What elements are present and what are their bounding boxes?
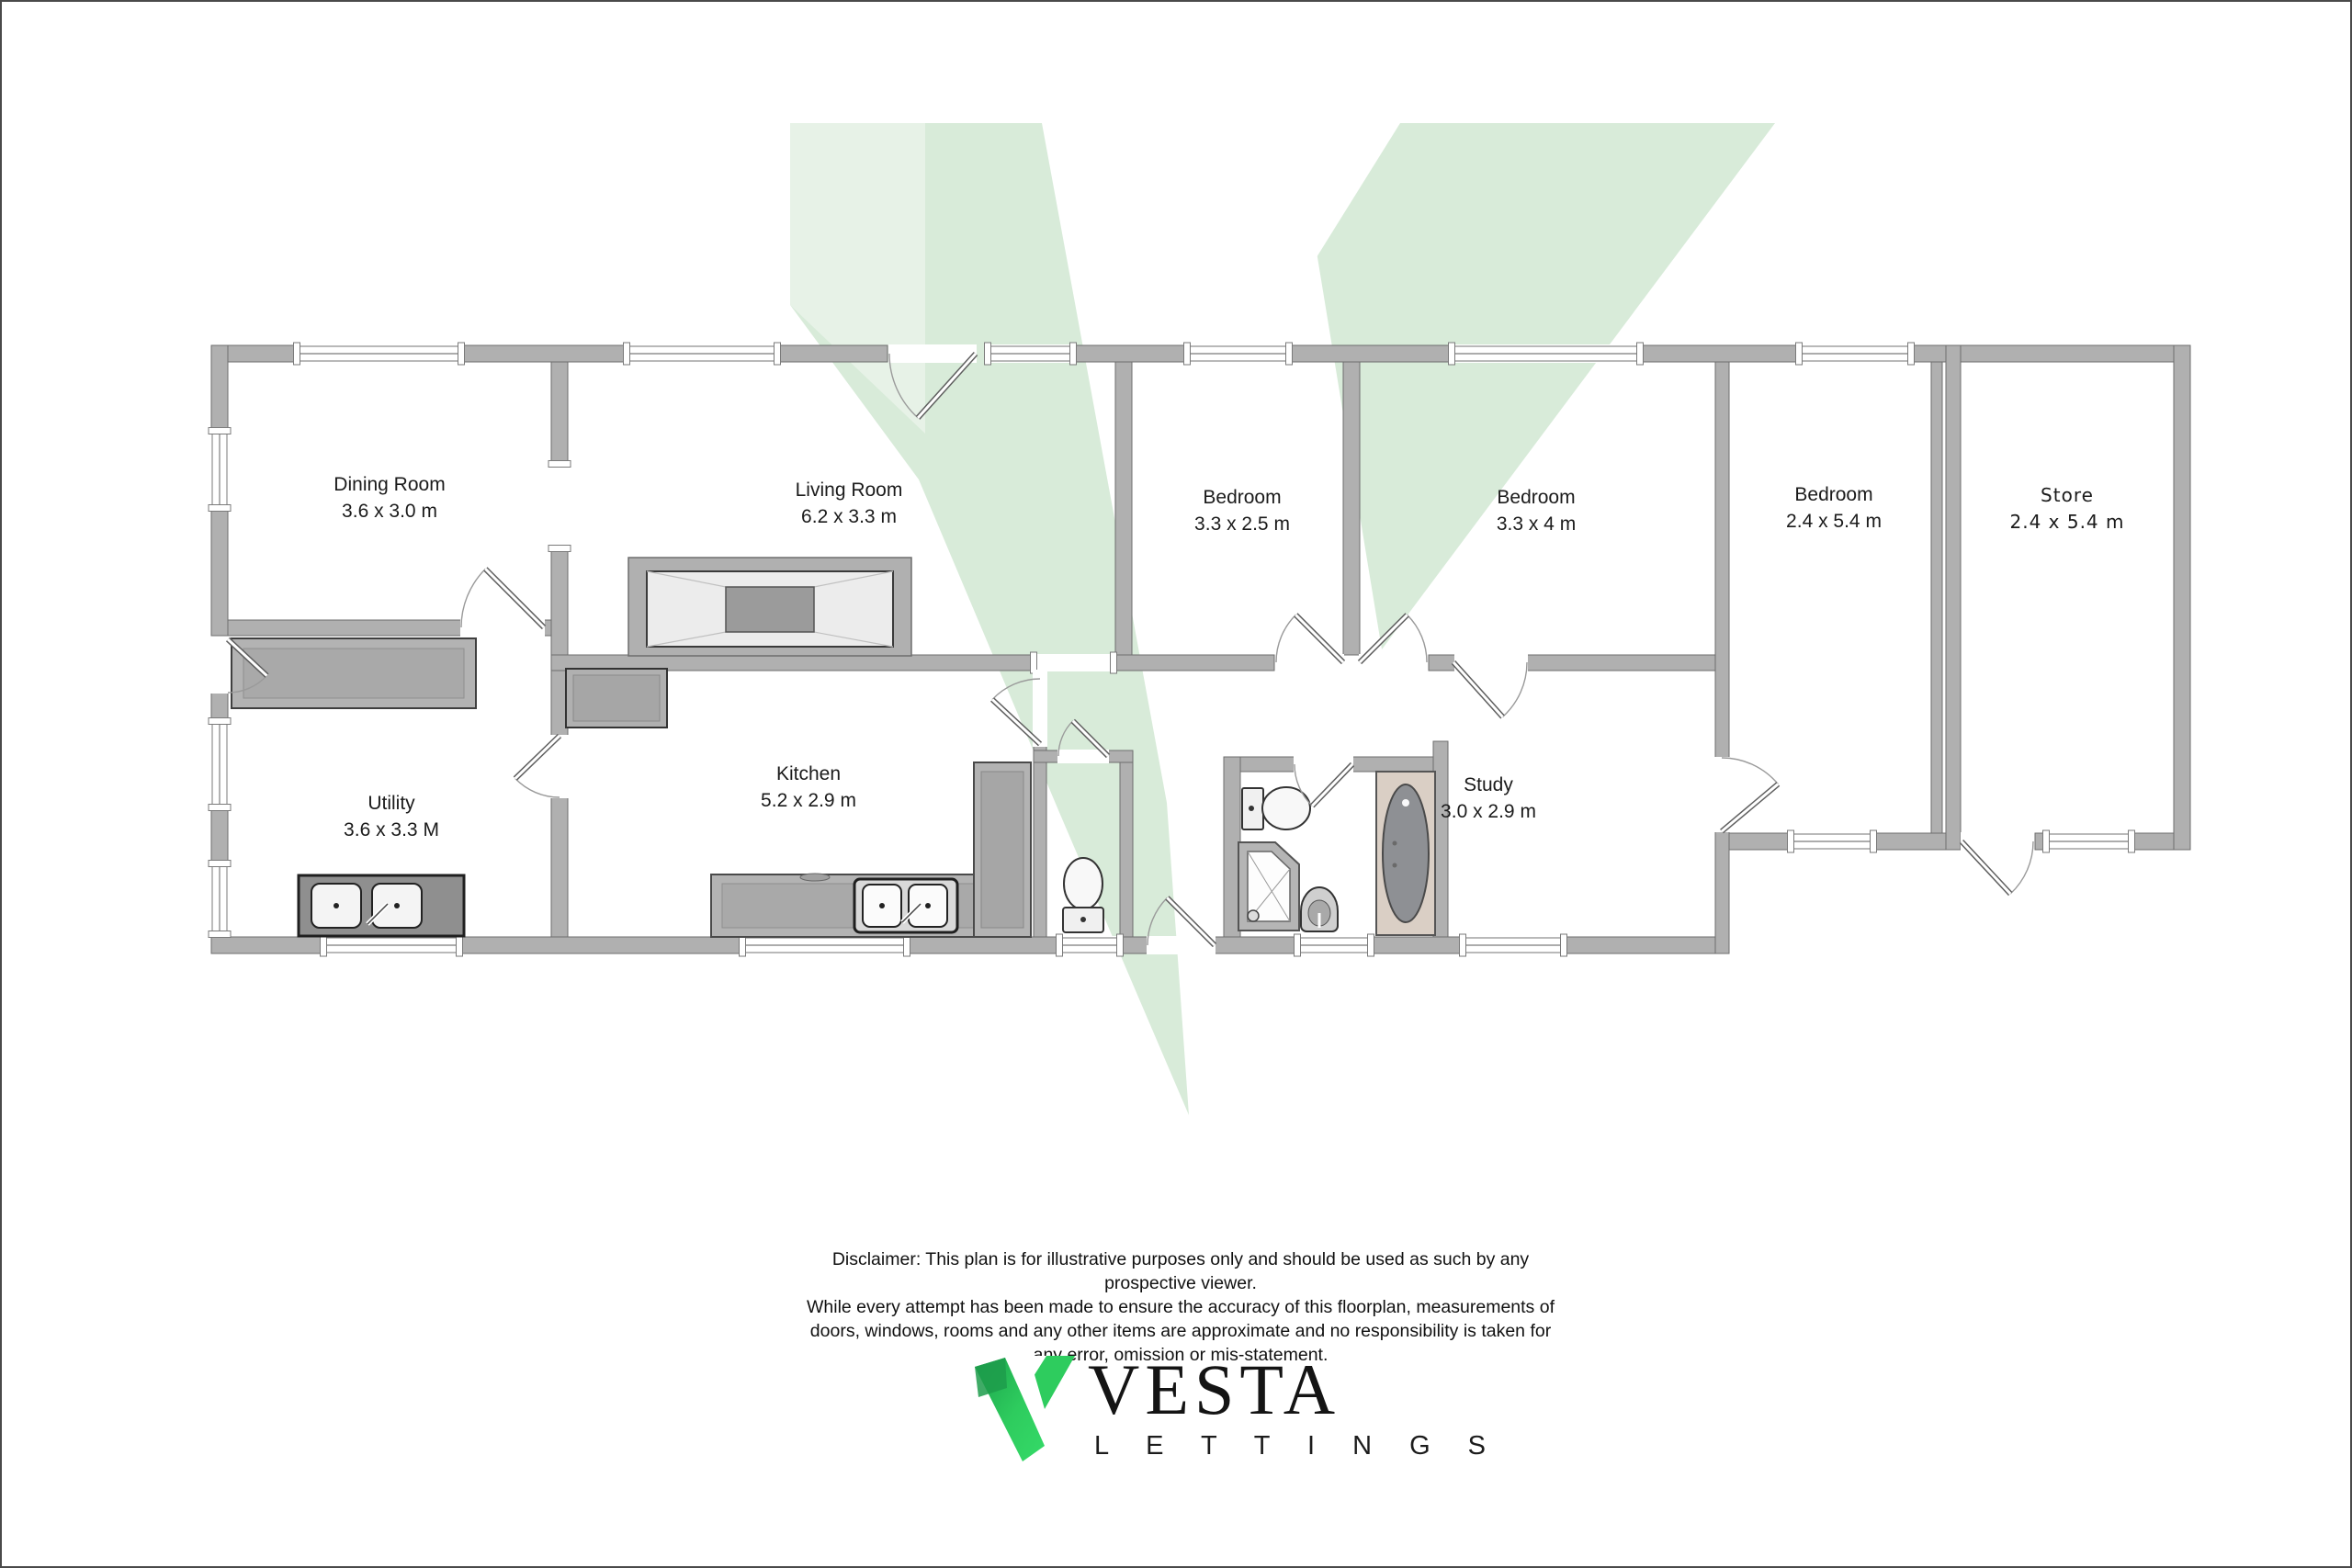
wall-segment xyxy=(1115,362,1132,655)
wall-segment xyxy=(1114,655,1274,671)
wall-segment xyxy=(1120,762,1133,937)
room-name: Bedroom xyxy=(1194,484,1290,511)
window-jamb xyxy=(1908,343,1915,365)
room-label-bedroom-2: Bedroom 3.3 x 4 m xyxy=(1497,484,1576,537)
bathtub-detail xyxy=(1393,863,1397,868)
window-jamb xyxy=(1070,343,1077,365)
room-dimensions: 6.2 x 3.3 m xyxy=(796,503,903,530)
fireplace-firebox xyxy=(726,587,814,632)
window-jamb xyxy=(209,861,231,867)
doorway-opening xyxy=(1034,654,1114,671)
window-jamb xyxy=(548,461,571,468)
wall-segment xyxy=(1946,345,1961,850)
room-label-bedroom-3: Bedroom 2.4 x 5.4 m xyxy=(1786,481,1882,535)
wall-segment xyxy=(211,345,228,431)
wall-segment xyxy=(551,362,568,464)
window-jamb xyxy=(1184,343,1191,365)
door-opening xyxy=(1714,757,1730,832)
door-swing-arc xyxy=(461,569,485,627)
sink-drain xyxy=(334,903,339,908)
window-jamb xyxy=(1057,934,1063,956)
window-jamb xyxy=(775,343,781,365)
doorway-opening xyxy=(550,464,569,548)
room-name: Kitchen xyxy=(761,761,856,787)
window-jamb xyxy=(209,428,231,434)
bathtub-tap xyxy=(1402,799,1409,807)
window-jamb xyxy=(209,931,231,938)
window-jamb xyxy=(209,805,231,811)
wall-segment xyxy=(1289,345,1452,362)
wall-segment xyxy=(777,345,888,362)
wall-segment xyxy=(1108,750,1133,762)
disclaimer-line: prospective viewer. xyxy=(675,1271,1686,1295)
wall-segment xyxy=(1120,937,1148,953)
kitchen-tall-unit-inner xyxy=(981,772,1023,928)
wall-segment xyxy=(211,807,228,863)
shower-head xyxy=(1248,910,1259,921)
wall-segment xyxy=(1729,833,1791,850)
utility-worktop-inner xyxy=(243,649,464,698)
wall-segment xyxy=(2174,345,2190,850)
room-name: Study xyxy=(1441,772,1536,798)
door-opening xyxy=(1961,832,2034,851)
room-name: Living Room xyxy=(796,477,903,503)
wall-segment xyxy=(211,508,228,636)
wall-segment xyxy=(1034,746,1046,937)
room-dimensions: 5.2 x 2.9 m xyxy=(761,787,856,814)
window-jamb xyxy=(2043,830,2050,852)
wc-toilet-button xyxy=(1080,917,1086,922)
window-jamb xyxy=(1871,830,1877,852)
room-label-kitchen: Kitchen 5.2 x 2.9 m xyxy=(761,761,856,814)
door-leaf-inner xyxy=(485,569,544,627)
wall-segment xyxy=(1715,831,1729,953)
window-jamb xyxy=(458,343,465,365)
door-opening xyxy=(1033,670,1047,747)
window-jamb xyxy=(624,343,630,365)
window-jamb xyxy=(1368,934,1374,956)
room-name: Bedroom xyxy=(1497,484,1576,511)
room-label-study: Study 3.0 x 2.9 m xyxy=(1441,772,1536,825)
door-opening xyxy=(1454,654,1528,671)
wall-segment xyxy=(1931,362,1942,833)
wall-segment xyxy=(459,937,742,953)
window-jamb xyxy=(1561,934,1567,956)
room-dimensions: 3.6 x 3.3 M xyxy=(344,817,439,843)
room-name: Dining Room xyxy=(334,471,445,498)
window-jamb xyxy=(1295,934,1301,956)
kitchen-appliance-inner xyxy=(573,675,660,721)
room-name: Bedroom xyxy=(1786,481,1882,508)
room-dimensions: 3.3 x 4 m xyxy=(1497,511,1576,537)
wall-segment xyxy=(211,691,228,721)
hob-detail xyxy=(800,874,830,881)
window-jamb xyxy=(209,505,231,512)
room-dimensions: 3.6 x 3.0 m xyxy=(334,498,445,525)
bathroom-toilet-button xyxy=(1249,806,1254,811)
room-name: Utility xyxy=(344,790,439,817)
wall-segment xyxy=(907,937,1059,953)
wc-toilet-bowl xyxy=(1064,858,1102,909)
window-jamb xyxy=(1788,830,1794,852)
disclaimer-line: doors, windows, rooms and any other item… xyxy=(675,1319,1686,1343)
sink-drain xyxy=(879,903,885,908)
wall-segment xyxy=(551,797,568,937)
room-label-dining-room: Dining Room 3.6 x 3.0 m xyxy=(334,471,445,525)
vesta-v-watermark xyxy=(1295,123,1775,649)
window-jamb xyxy=(2129,830,2135,852)
vesta-lettings-logo: VESTA L E T T I N G S xyxy=(972,1354,1501,1462)
room-label-store: Store 2.4 x 5.4 m xyxy=(2009,482,2124,536)
door-opening xyxy=(460,619,545,637)
window-jamb xyxy=(1286,343,1293,365)
door-swing-arc xyxy=(1722,758,1778,784)
wall-segment xyxy=(1034,750,1058,762)
bathtub-detail xyxy=(1393,841,1397,846)
window-jamb xyxy=(294,343,300,365)
window-jamb xyxy=(321,934,327,956)
window-jamb xyxy=(1449,343,1455,365)
door-opening xyxy=(888,344,977,363)
window-jamb xyxy=(548,546,571,552)
room-dimensions: 2.4 x 5.4 m xyxy=(2009,509,2124,536)
room-name: Store xyxy=(2009,482,2124,509)
wall-segment xyxy=(228,620,461,636)
wall-segment xyxy=(1429,655,1455,671)
window-jamb xyxy=(209,718,231,725)
floorplan-page: Dining Room 3.6 x 3.0 m Living Room 6.2 … xyxy=(0,0,2352,1568)
wall-segment xyxy=(1215,937,1297,953)
brand-division: L E T T I N G S xyxy=(1088,1431,1501,1461)
window-jamb xyxy=(985,343,991,365)
window-jamb xyxy=(1117,934,1124,956)
vesta-v-logo-icon xyxy=(972,1354,1075,1462)
room-dimensions: 2.4 x 5.4 m xyxy=(1786,508,1882,535)
wall-segment xyxy=(1352,757,1433,772)
wall-segment xyxy=(1564,937,1729,953)
wall-segment xyxy=(1073,345,1187,362)
window-jamb xyxy=(1460,934,1466,956)
door-opening xyxy=(210,638,229,694)
wall-segment xyxy=(1371,937,1463,953)
door-leaf-inner xyxy=(1722,784,1778,831)
sink-drain xyxy=(925,903,931,908)
wall-segment xyxy=(1715,362,1729,758)
room-label-living-room: Living Room 6.2 x 3.3 m xyxy=(796,477,903,530)
wall-segment xyxy=(1640,345,1799,362)
disclaimer-line: Disclaimer: This plan is for illustrativ… xyxy=(675,1247,1686,1271)
brand-name: VESTA xyxy=(1088,1354,1501,1426)
room-label-bedroom-1: Bedroom 3.3 x 2.5 m xyxy=(1194,484,1290,537)
room-dimensions: 3.0 x 2.9 m xyxy=(1441,798,1536,825)
window-jamb xyxy=(1637,343,1644,365)
wall-segment xyxy=(211,937,323,953)
room-label-utility: Utility 3.6 x 3.3 M xyxy=(344,790,439,843)
wall-segment xyxy=(544,620,551,636)
wall-segment xyxy=(461,345,627,362)
disclaimer-line: While every attempt has been made to ens… xyxy=(675,1295,1686,1319)
window-jamb xyxy=(1111,652,1117,673)
window-jamb xyxy=(1796,343,1803,365)
wall-segment xyxy=(1527,655,1715,671)
room-dimensions: 3.3 x 2.5 m xyxy=(1194,511,1290,537)
window-jamb xyxy=(457,934,463,956)
sink-drain xyxy=(394,903,400,908)
wall-segment xyxy=(1343,362,1360,655)
